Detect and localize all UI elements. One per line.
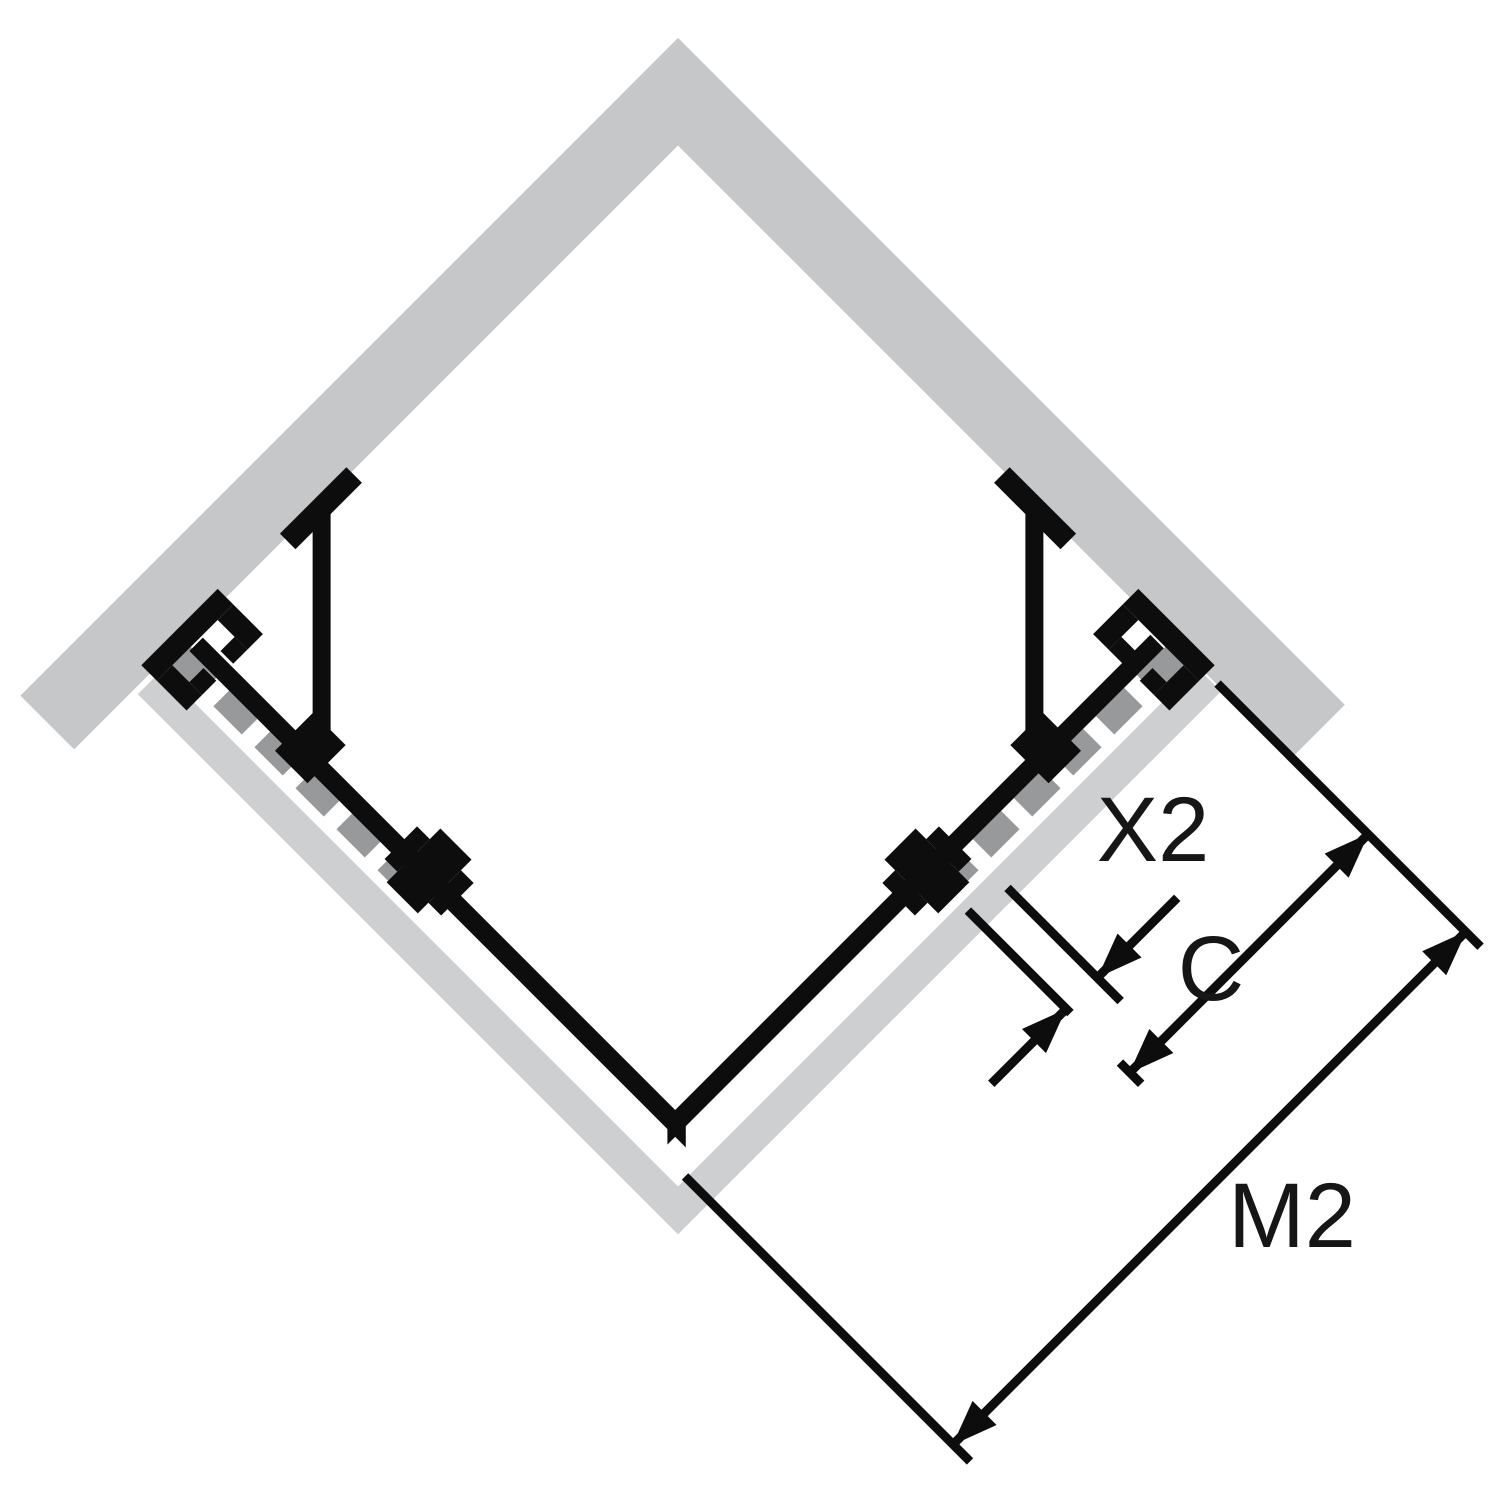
diagram-page: X2 C M2 <box>0 0 1500 1500</box>
rotated-scene <box>20 38 1500 1500</box>
support-bars <box>200 151 1156 1107</box>
shower-tray-edge <box>150 151 1209 1210</box>
extension-line-reference <box>1218 684 1481 947</box>
wall-left <box>20 38 731 749</box>
walls <box>20 38 1344 1362</box>
diagram-canvas: X2 C M2 <box>0 0 1500 1500</box>
label-m2: M2 <box>1228 1165 1356 1267</box>
dim-arrow-x2-lower <box>991 1012 1063 1084</box>
extension-line-corner <box>685 1176 970 1461</box>
extension-line-x2-upper <box>1008 888 1121 1001</box>
dim-arrow-x2-upper <box>1100 898 1177 975</box>
label-x2: X2 <box>1097 779 1210 881</box>
extension-line-x2-lower <box>968 911 1071 1014</box>
black-parts <box>141 129 1214 1202</box>
dimension-labels: X2 C M2 <box>1097 779 1356 1267</box>
label-c: C <box>1178 918 1244 1020</box>
wall-right <box>624 38 1345 759</box>
